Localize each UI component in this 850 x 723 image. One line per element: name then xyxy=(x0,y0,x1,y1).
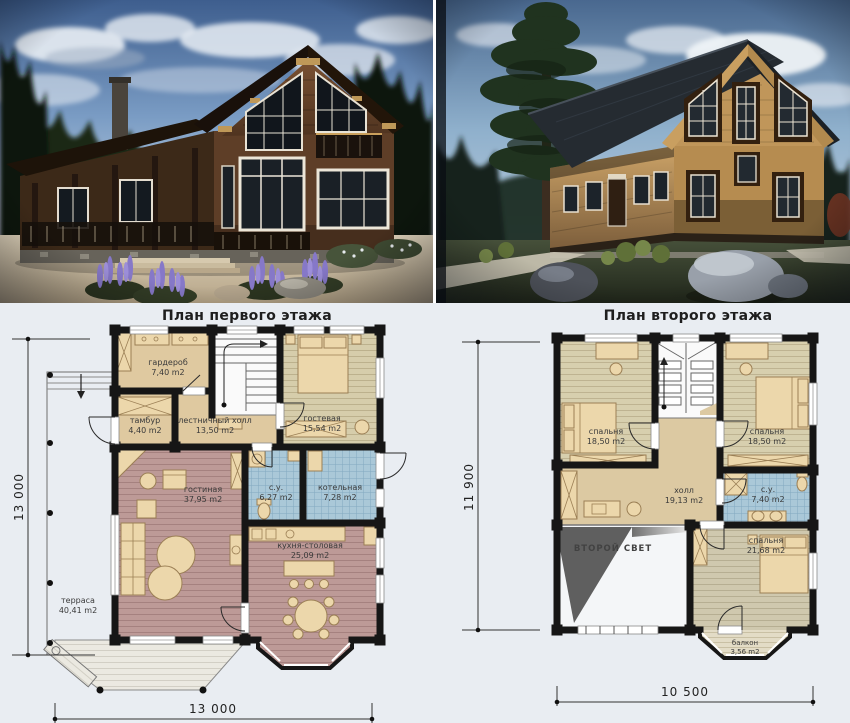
room-label-boiler: котельная7,28 m2 xyxy=(318,483,362,502)
room-label-bedroom-left: спальня18,50 m2 xyxy=(587,427,625,446)
room-label-terrace: терраса40,41 m2 xyxy=(59,596,97,615)
first-floor-plan: План первого этажа xyxy=(0,303,430,723)
void-label: ВТОРОЙ СВЕТ xyxy=(574,542,652,554)
room-label-guest: гостевая15,54 m2 xyxy=(303,414,341,433)
second-floor-plan: План второго этажа ВТОРОЙ СВЕТ xyxy=(430,303,850,723)
dim-vertical-second: 11 900 xyxy=(462,463,476,511)
dim-vertical-first: 13 000 xyxy=(12,473,26,521)
dim-horizontal-second: 10 500 xyxy=(661,685,709,699)
room-label-bedroom-right: спальня18,50 m2 xyxy=(748,427,786,446)
room-label-balcony: балкон3,56 m2 xyxy=(730,639,759,656)
room-label-vestibule: тамбур4,40 m2 xyxy=(128,416,161,435)
room-label-living: гостиная37,95 m2 xyxy=(184,485,222,504)
page: План первого этажа xyxy=(0,0,850,723)
room-label-bedroom-bottom: спальня21,68 m2 xyxy=(747,536,785,555)
house-render-front xyxy=(0,0,433,303)
house-render-rear xyxy=(436,0,850,303)
vignette xyxy=(0,0,433,303)
plan-title-first: План первого этажа xyxy=(162,308,332,324)
plan-title-second: План второго этажа xyxy=(604,308,773,324)
vignette xyxy=(436,0,850,303)
dim-horizontal-first: 13 000 xyxy=(189,702,237,716)
room-label-wardrobe: гардероб7,40 m2 xyxy=(148,358,188,377)
